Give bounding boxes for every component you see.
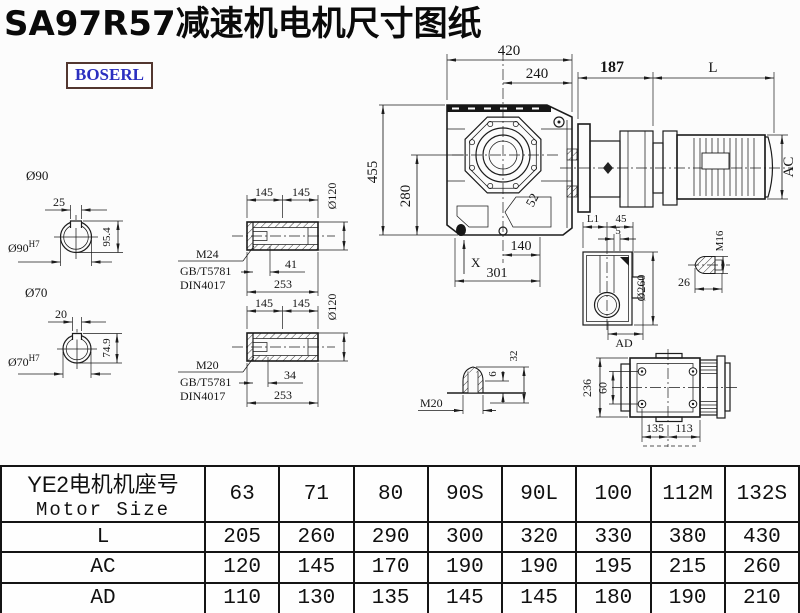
plug-m16-length-dim: 26 [678,275,690,289]
cell-L-80: 290 [354,522,428,552]
hollow-shaft-1-drawing: 145 145 Ø120 M24 GB/T5781 DIN4017 41 253 [178,183,348,296]
motor-side-view-drawing: 187 L AC [560,59,797,212]
column-90s: 90S [428,466,502,522]
side-45-dim: 45 [616,213,628,225]
column-63: 63 [205,466,279,522]
hollow1-standard-gb: GB/T5781 [180,264,231,278]
side-l1-dim: L1 [587,213,599,225]
cell-AC-132s: 260 [725,552,799,583]
cell-L-63: 205 [205,522,279,552]
cell-L-71: 260 [279,522,353,552]
shaft90-dia-label: Ø90 [26,168,48,183]
plug-m16-drawing: M16 26 [678,230,730,293]
shaft90-bore-label: Ø90H7 [8,239,40,255]
column-132s: 132S [725,466,799,522]
column-80: 80 [354,466,428,522]
row-label-AD: AD [1,583,205,613]
column-71: 71 [279,466,353,522]
shaft70-bore-label: Ø70H7 [8,353,40,369]
cell-AD-80: 135 [354,583,428,613]
cell-AC-112m: 215 [651,552,725,583]
cell-AC-80: 170 [354,552,428,583]
column-112m: 112M [651,466,725,522]
table-row-AC: AC 120 145 170 190 190 195 215 260 [1,552,799,583]
hollow1-standard-din: DIN4017 [180,278,225,292]
shaft90-bore-value: Ø90 [8,241,29,255]
hollow1-dia-dim: Ø120 [325,183,339,210]
motor-dia-dim: AC [781,157,797,178]
top-135-dim: 135 [646,421,664,435]
row-label-AC: AC [1,552,205,583]
top-height-dim: 236 [580,379,594,397]
plug-m20-drawing: M20 6 32 [418,351,529,415]
table-header-row: YE2电机机座号 Motor Size 63 71 80 90S 90L 100… [1,466,799,522]
plug-m20-tip-dim: 6 [487,371,499,377]
shaft90-keyway-height-dim: 95.4 [101,227,113,247]
shaft70-bore-tolerance: H7 [29,353,40,363]
hollow2-thread-depth-dim: 34 [284,368,296,382]
top-hole-spacing-dim: 60 [596,382,610,394]
hollow2-standard-din: DIN4017 [180,389,225,403]
hollow2-total-length-dim: 253 [274,388,292,402]
shaft70-dia-label: Ø70 [25,285,47,300]
cell-AD-90l: 145 [502,583,576,613]
front-overall-width-dim: 420 [498,43,521,59]
cell-AC-90l: 190 [502,552,576,583]
cell-AC-90s: 190 [428,552,502,583]
cell-AC-100: 195 [576,552,650,583]
brand-logo: BOSERL [66,62,153,89]
shaft90-bore-tolerance: H7 [29,239,40,249]
hollow2-length-left-dim: 145 [255,296,273,310]
gearbox-front-view-drawing: 420 240 455 280 52 140 301 X [365,43,577,287]
side-ad-dim: AD [615,336,633,350]
cell-AD-71: 130 [279,583,353,613]
hollow1-length-right-dim: 145 [292,185,310,199]
shaft70-keyway-height-dim: 74.9 [101,338,113,358]
cell-AD-90s: 145 [428,583,502,613]
motor-adapter-length-dim: 187 [600,59,624,76]
plug-m20-thread-label: M20 [420,396,443,410]
table-header-en: Motor Size [2,499,204,521]
motor-length-dim: L [708,60,717,76]
front-rib-dim: 52 [522,191,541,210]
cell-L-90l: 320 [502,522,576,552]
table-header-cn: YE2电机机座号 [2,467,204,499]
page-title: SA97R57减速机电机尺寸图纸 [4,0,482,45]
shaft70-keyway-width-dim: 20 [55,307,67,321]
hollow1-thread-label: M24 [196,247,219,261]
column-100: 100 [576,466,650,522]
cell-L-132s: 430 [725,522,799,552]
cell-AD-112m: 190 [651,583,725,613]
side-5-dim: 5 [615,225,621,237]
shaft70-bore-value: Ø70 [8,355,29,369]
cell-AD-63: 110 [205,583,279,613]
plug-m16-thread-label: M16 [714,230,726,251]
drawing-sheet: Ø90 25 95.4 Ø90H7 Ø70 [0,0,800,613]
hollow2-dia-dim: Ø120 [325,294,339,321]
cell-AD-100: 180 [576,583,650,613]
table-row-L: L 205 260 290 300 320 330 380 430 [1,522,799,552]
table-header-cell: YE2电机机座号 Motor Size [1,466,205,522]
row-label-L: L [1,522,205,552]
hollow-shaft-2-drawing: 145 145 Ø120 M20 GB/T5781 DIN4017 34 253 [178,294,348,407]
column-90l: 90L [502,466,576,522]
hollow1-length-left-dim: 145 [255,185,273,199]
hollow2-length-right-dim: 145 [292,296,310,310]
cell-AD-132s: 210 [725,583,799,613]
cell-L-112m: 380 [651,522,725,552]
hollow2-standard-gb: GB/T5781 [180,375,231,389]
front-foot-width-dim: 301 [487,266,508,281]
front-overall-height-dim: 455 [365,161,381,184]
hollow1-thread-depth-dim: 41 [285,257,297,271]
cell-L-100: 330 [576,522,650,552]
gearbox-top-view-drawing: 236 60 135 113 [580,349,740,447]
front-center-to-edge-dim: 240 [526,66,549,82]
front-foot-center-dim: 140 [511,239,532,254]
motor-size-table: YE2电机机座号 Motor Size 63 71 80 90S 90L 100… [0,465,800,613]
shaft-section-70-drawing: Ø70 20 74.9 Ø70H7 [8,285,122,378]
front-axis-height-dim: 280 [398,185,414,208]
plug-m20-height-dim: 32 [508,351,520,362]
front-datum-label: X [471,255,481,270]
cell-AC-71: 145 [279,552,353,583]
hollow2-thread-label: M20 [196,358,219,372]
shaft-section-90-drawing: Ø90 25 95.4 Ø90H7 [8,168,123,266]
cell-AC-63: 120 [205,552,279,583]
cell-L-90s: 300 [428,522,502,552]
top-113-dim: 113 [675,421,693,435]
gearbox-side-view-drawing: L1 45 5 Ø260 AD [583,213,658,350]
hollow1-total-length-dim: 253 [274,277,292,291]
side-flange-dia-dim: Ø260 [634,275,648,302]
table-row-AD: AD 110 130 135 145 145 180 190 210 [1,583,799,613]
shaft90-keyway-width-dim: 25 [53,195,65,209]
